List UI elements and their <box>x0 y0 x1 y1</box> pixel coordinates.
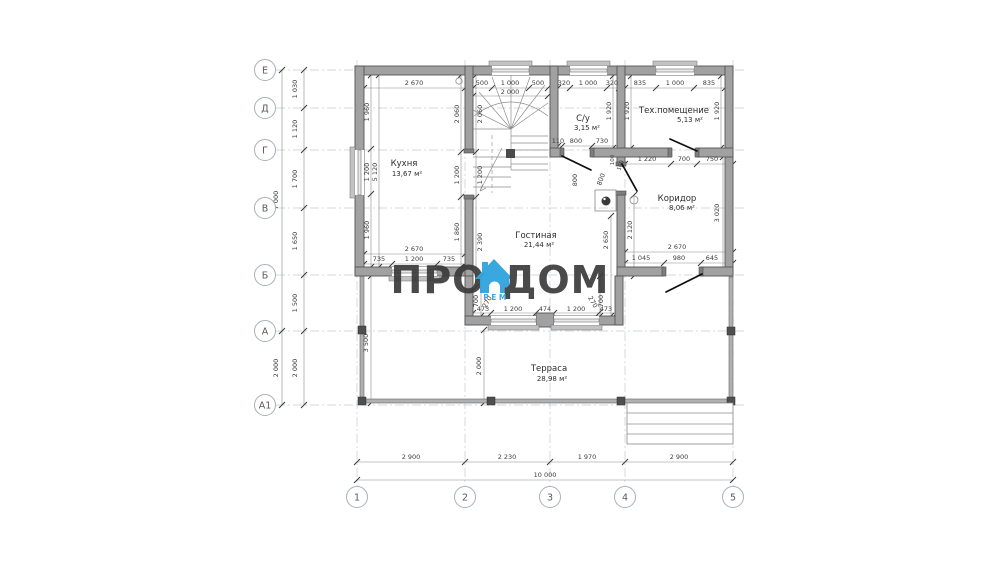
dimension-label: 835 <box>634 79 646 87</box>
dimension-label: 1 200 <box>453 166 461 185</box>
window <box>554 316 599 325</box>
dimension-label: 1 200 <box>504 305 523 313</box>
axis-marker: А1 <box>259 401 272 412</box>
room-name: Гостиная <box>515 231 556 241</box>
dimension-label: 10 000 <box>534 471 557 479</box>
axis-marker: Д <box>261 104 268 115</box>
dimension-label: 1 920 <box>623 102 631 121</box>
dimension-label: 1 200 <box>567 305 586 313</box>
axis-marker: Г <box>262 146 268 157</box>
room-name: С/у <box>576 114 590 124</box>
room-area: 3,15 м² <box>574 124 600 132</box>
room-area: 13,67 м² <box>392 170 423 178</box>
railing-post <box>487 397 495 405</box>
axis-marker: В <box>262 204 269 215</box>
window <box>656 66 694 75</box>
wall-exterior-right <box>725 66 733 276</box>
dimension-label: 980 <box>673 254 685 262</box>
dimension-label: 2 670 <box>405 79 424 87</box>
dimension-label: 1 200 <box>476 166 484 185</box>
logo-text-pro: ПРО <box>391 258 486 302</box>
axis-marker: Е <box>262 66 268 77</box>
room-area: 21,44 м² <box>524 241 555 249</box>
dimension-label: 1 030 <box>291 80 299 99</box>
axis-marker: 4 <box>622 493 628 504</box>
room-name: Кухня <box>391 159 418 169</box>
dimension-label: 800 <box>571 174 579 186</box>
dimension-label: 2 670 <box>668 243 687 251</box>
dimension-label: 2 060 <box>476 105 484 124</box>
wall-corridor-bottom-b <box>701 267 733 276</box>
door-tech-room <box>670 139 697 151</box>
dimension-label: 800 <box>570 137 582 145</box>
railing-post <box>358 397 366 405</box>
window <box>491 316 536 325</box>
floor-plan-page: 7 0002 0001 0301 1201 7001 6501 5002 000… <box>0 0 1000 563</box>
dimension-label: 2 230 <box>498 453 517 461</box>
dimension-label: 3 020 <box>713 204 721 223</box>
dimension-label: 800 <box>595 172 607 186</box>
dimension-label: 1 045 <box>632 254 651 262</box>
dimension-label: 1 960 <box>363 221 371 240</box>
room-name: Терраса <box>530 364 567 374</box>
dimension-label: 1 200 <box>363 163 371 182</box>
dimension-label: 1 920 <box>605 102 613 121</box>
room-name: Коридор <box>658 194 697 204</box>
axis-marker: Б <box>262 271 269 282</box>
room-area: 8,06 м² <box>669 204 695 212</box>
dimension-label: 1 970 <box>578 453 597 461</box>
entrance-steps <box>627 403 733 444</box>
dimension-label: 1 000 <box>501 79 520 87</box>
axis-marker: 1 <box>354 493 360 504</box>
axis-marker: 2 <box>462 493 468 504</box>
wall-corridor-bottom-a <box>617 267 664 276</box>
dimension-label: 1 700 <box>291 170 299 189</box>
dimension-label: 2 000 <box>272 359 280 378</box>
railing-post <box>358 326 366 334</box>
door-corridor <box>622 164 637 191</box>
door-terrace-exit <box>666 274 702 292</box>
dimension-label: 735 <box>373 255 385 263</box>
logo-watermark: ПРО ДОМ РЕМ <box>391 258 610 302</box>
wall-corridor-west-b <box>617 195 625 276</box>
dimension-label: 1 920 <box>713 102 721 121</box>
dimension-label: 1 120 <box>291 120 299 139</box>
dimension-label: 1 220 <box>638 155 657 163</box>
dimension-label: 2 390 <box>476 233 484 252</box>
dimension-label: 2 670 <box>405 245 424 253</box>
dimension-label: 750 <box>706 155 718 163</box>
dimension-label: 110 <box>552 137 564 145</box>
dimension-label: 2 000 <box>475 357 483 376</box>
dimension-label: 3 500 <box>362 334 370 353</box>
dimension-label: 1 000 <box>666 79 685 87</box>
dimension-label: 2 120 <box>626 221 634 240</box>
dimension-label: 500 <box>532 79 544 87</box>
floor-plan-canvas: 7 0002 0001 0301 1201 7001 6501 5002 000… <box>0 0 1000 563</box>
logo-text-rem: РЕМ <box>483 293 509 302</box>
axis-marker: 5 <box>730 493 736 504</box>
dimension-label: 700 <box>678 155 690 163</box>
dimension-label: 474 <box>539 305 551 313</box>
window <box>492 66 529 75</box>
dimension-label: 1 650 <box>291 232 299 251</box>
room-area: 28,98 м² <box>537 375 568 383</box>
railing-post <box>617 397 625 405</box>
dimension-label: 2 000 <box>501 88 520 96</box>
wall-bath-bottom-b <box>592 148 671 157</box>
dimension-label: 2 900 <box>402 453 421 461</box>
axis-marker: А <box>262 327 269 338</box>
dimension-label: 1 500 <box>291 294 299 313</box>
dimension-label: 473 <box>477 305 489 313</box>
axis-marker: 3 <box>547 493 553 504</box>
window <box>570 66 607 75</box>
dimension-label: 473 <box>600 305 612 313</box>
dimension-label: 500 <box>476 79 488 87</box>
dimension-label: 2 000 <box>291 359 299 378</box>
dimension-label: 2 900 <box>670 453 689 461</box>
railing-post <box>727 327 735 335</box>
room-area: 5,13 м² <box>677 116 703 124</box>
stair-landing-marker <box>506 149 515 158</box>
dimension-label: 730 <box>596 137 608 145</box>
dimension-label: 320 <box>606 79 618 87</box>
logo-text-dom: ДОМ <box>503 258 610 302</box>
dimension-label: 100 <box>610 154 616 165</box>
dimension-label: 2 060 <box>453 105 461 124</box>
door-bathroom <box>562 156 591 170</box>
room-name: Тех.помещение <box>638 106 709 116</box>
dimension-label: 1 960 <box>363 103 371 122</box>
dimension-label: 645 <box>706 254 718 262</box>
dimension-label: 5 120 <box>371 163 379 182</box>
dimension-label: 1 860 <box>453 223 461 242</box>
dimension-label: 835 <box>703 79 715 87</box>
dimension-label: 320 <box>558 79 570 87</box>
dimension-label: 1 000 <box>579 79 598 87</box>
wall-bay-right <box>615 276 623 325</box>
wall-kitchen-living-top <box>465 66 473 152</box>
dimension-label: 2 650 <box>602 231 610 250</box>
